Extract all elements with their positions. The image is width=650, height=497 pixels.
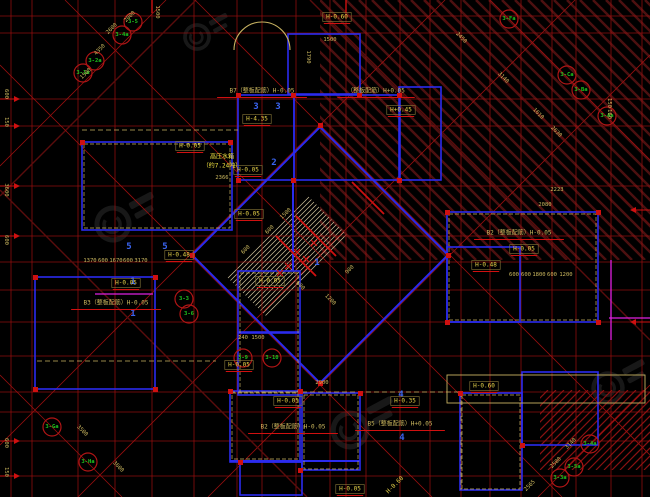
hatch-line bbox=[593, 0, 650, 260]
dim-text: 1500 bbox=[154, 5, 160, 18]
watermark-glyph bbox=[213, 23, 228, 34]
hatch-line bbox=[204, 195, 326, 317]
label-text: H-0.05 bbox=[259, 278, 281, 285]
axis-bubble-label: 3-6 bbox=[184, 311, 195, 317]
label-text: H-0.60 bbox=[326, 14, 348, 21]
watermark-glyph bbox=[134, 205, 154, 220]
text-label: H-0.60 bbox=[385, 475, 406, 496]
axis-bubble: 3-Ba bbox=[572, 81, 590, 99]
column-mark bbox=[596, 210, 601, 215]
column-mark bbox=[228, 140, 233, 145]
section-digit: 1 bbox=[314, 258, 319, 268]
axis-bubble: 3-10 bbox=[263, 349, 281, 367]
dim-text: 1370 bbox=[83, 258, 96, 264]
dim-text: 600 bbox=[264, 224, 275, 235]
hatch-line bbox=[199, 195, 321, 317]
hatch-line bbox=[468, 390, 548, 470]
axis-bubble: 3-6 bbox=[180, 305, 198, 323]
column-mark bbox=[445, 320, 450, 325]
dim-text: 4350 bbox=[93, 43, 107, 57]
axis-bubble-label: 3-Ha bbox=[81, 459, 94, 465]
hatch-line bbox=[489, 0, 650, 260]
plate-dashed-outline bbox=[462, 395, 520, 489]
column-mark bbox=[446, 253, 451, 258]
column-mark bbox=[33, 275, 38, 280]
section-digit: 5 bbox=[126, 242, 131, 252]
axis-bubble-label: 3-10 bbox=[265, 355, 278, 361]
dim-arrow-head bbox=[14, 96, 20, 102]
dim-text: 150 bbox=[3, 467, 9, 477]
hatch-line bbox=[209, 195, 331, 317]
label-text: H-0.05 bbox=[339, 486, 361, 493]
wall-rect bbox=[240, 462, 302, 495]
dim-text: 160 bbox=[606, 109, 612, 119]
label-text: B2（整板配筋）H-0.05 bbox=[487, 229, 552, 237]
text-label: B2（整板配筋）H-0.05 bbox=[248, 423, 338, 434]
column-mark bbox=[80, 140, 85, 145]
label-text: B7（整板配筋）H-0.05 bbox=[230, 87, 295, 95]
elevation-label: H-4.35 bbox=[243, 115, 271, 126]
watermark bbox=[91, 187, 163, 246]
elevation-label: H-0.48 bbox=[165, 251, 193, 262]
axis-bubble-label: 3-9 bbox=[238, 355, 248, 361]
dim-arrow-head bbox=[14, 438, 20, 444]
label-text: B2（整板配筋）H-0.05 bbox=[261, 423, 326, 431]
diagonal-grid-line bbox=[65, 0, 562, 497]
axis-bubble-label: 3-Ca bbox=[560, 72, 573, 78]
axis-bubble: 3-Ca bbox=[558, 66, 576, 84]
label-text: （约7.24吨） bbox=[203, 162, 241, 170]
axis-bubble-label: 3-Ba bbox=[574, 87, 587, 93]
elevation-label: H-0.05 bbox=[225, 361, 253, 372]
hatch-line bbox=[254, 195, 376, 317]
dim-text: 150 bbox=[606, 98, 612, 108]
dim-text: 3170 bbox=[134, 258, 147, 264]
label-text: H-0.05 bbox=[513, 246, 535, 253]
column-mark bbox=[291, 178, 296, 183]
column-mark bbox=[397, 178, 402, 183]
dim-text: 150 bbox=[3, 117, 9, 127]
axis-bubble: 3-Fa bbox=[500, 10, 518, 28]
column-mark bbox=[596, 320, 601, 325]
elevation-label: H-0.48 bbox=[472, 261, 500, 272]
hatch-line bbox=[580, 0, 650, 260]
dim-text: 2565 bbox=[523, 479, 537, 493]
label-text: H-0.60 bbox=[473, 383, 495, 390]
column-mark bbox=[298, 389, 303, 394]
watermark-swirl-icon bbox=[181, 21, 213, 53]
hatch-layer bbox=[60, 0, 650, 470]
elevation-label: H+0.45 bbox=[387, 106, 415, 117]
dim-text: 2900 bbox=[315, 380, 328, 386]
diagonal-layer bbox=[0, 0, 650, 497]
dim-text: 600 bbox=[3, 89, 9, 99]
dim-text: 1670 bbox=[109, 258, 122, 264]
column-mark bbox=[458, 391, 463, 396]
watermark-swirl-icon bbox=[91, 202, 134, 245]
hatch-band bbox=[460, 390, 650, 470]
section-digit: 1 bbox=[130, 309, 135, 319]
text-label: （约7.24吨） bbox=[203, 162, 241, 170]
dim-text: 2223 bbox=[550, 187, 563, 193]
axis-bubble: 3-Ha bbox=[79, 453, 97, 471]
label-text: H-0.60 bbox=[385, 475, 406, 496]
label-text: H-0.05 bbox=[228, 362, 250, 369]
axis-bubble-label: 3-4a bbox=[583, 441, 596, 447]
elevation-label: H-0.35 bbox=[391, 397, 419, 408]
elevation-label: H-0.05 bbox=[235, 210, 263, 221]
column-mark bbox=[520, 443, 525, 448]
dim-arrow-head bbox=[14, 473, 20, 479]
label-text: H-0.05 bbox=[115, 280, 137, 287]
label-text: H-0.35 bbox=[394, 398, 416, 405]
dim-text: 1200 bbox=[559, 272, 572, 278]
dim-text: 600 bbox=[521, 272, 531, 278]
diagonal-grid-line bbox=[490, 0, 650, 160]
elevation-label: H-0.60 bbox=[470, 382, 498, 393]
label-text: H-0.05 bbox=[238, 211, 260, 218]
watermark-swirl-icon bbox=[189, 30, 205, 46]
dim-text: 600 bbox=[3, 235, 9, 245]
dim-text: 600 bbox=[98, 258, 108, 264]
elevation-label: H-0.05 bbox=[176, 142, 204, 153]
text-label: B3（整板配筋）H-0.05 bbox=[71, 299, 161, 310]
dim-arrow-head bbox=[14, 233, 20, 239]
axis-bubble: 3-4a bbox=[581, 435, 599, 453]
column-mark bbox=[318, 123, 323, 128]
dim-text: 3600 bbox=[111, 460, 125, 474]
label-text: H+0.45 bbox=[390, 107, 412, 114]
grid-layer bbox=[0, 0, 650, 497]
dim-text: 600 bbox=[509, 272, 519, 278]
text-label: 高压水箱 bbox=[210, 153, 234, 161]
dim-text: 600 bbox=[3, 438, 9, 448]
section-digit: 3 bbox=[275, 102, 280, 112]
wall-rect bbox=[460, 393, 522, 490]
axis-bubble-label: 3-5a bbox=[567, 464, 580, 470]
dim-text: 1790 bbox=[305, 50, 311, 63]
dim-text: 1500 bbox=[323, 37, 336, 43]
column-mark bbox=[153, 387, 158, 392]
section-digit: 4 bbox=[399, 433, 405, 443]
hatch-line bbox=[460, 390, 540, 470]
axis-bubble-label: 3-Ga bbox=[45, 424, 58, 430]
column-mark bbox=[445, 210, 450, 215]
axis-bubble-label: 3-3a bbox=[553, 475, 566, 481]
cad-viewport[interactable]: autocad-floor-plan-viewport 3-53-4a3-2a3… bbox=[0, 0, 650, 497]
section-digit: 2 bbox=[271, 158, 276, 168]
axis-bubble-label: 3-4a bbox=[115, 32, 128, 38]
axis-bubble-label: 3-Fa bbox=[502, 16, 515, 22]
hatch-line bbox=[515, 0, 650, 260]
axis-bubble: 3-3a bbox=[551, 469, 569, 487]
label-text: B5（整板配筋）H+0.05 bbox=[368, 420, 433, 428]
column-mark bbox=[153, 275, 158, 280]
dim-text: 1500 bbox=[279, 207, 293, 221]
dim-text: 600 bbox=[240, 244, 251, 255]
column-mark bbox=[190, 253, 195, 258]
label-text: 高压水箱 bbox=[210, 153, 234, 161]
label-text: H-0.48 bbox=[475, 262, 497, 269]
column-mark bbox=[358, 391, 363, 396]
dim-text: 1800 bbox=[532, 272, 545, 278]
elevation-label: H-0.05 bbox=[112, 279, 140, 290]
column-mark bbox=[228, 389, 233, 394]
diagonal-grid-line bbox=[0, 0, 196, 196]
hatch-line bbox=[632, 0, 650, 260]
column-mark bbox=[238, 460, 243, 465]
dim-text: 1500 bbox=[251, 335, 264, 341]
wall-rect bbox=[447, 247, 520, 322]
elevation-label: H-0.60 bbox=[323, 13, 351, 24]
column-mark bbox=[236, 178, 241, 183]
section-digit: 3 bbox=[253, 102, 258, 112]
cad-drawing: 3-53-4a3-2a3-1a3-Fa3-Ca3-Ba3-Aa3-33-63-9… bbox=[0, 0, 650, 497]
label-text: （整板配筋）H+0.05 bbox=[347, 87, 405, 95]
dim-text: 600 bbox=[123, 258, 133, 264]
diagonal-grid-line bbox=[0, 0, 445, 445]
dim-text: 2366 bbox=[215, 175, 228, 181]
diagonal-grid-line bbox=[0, 375, 122, 497]
dim-text: 600 bbox=[547, 272, 557, 278]
dim-text: 3500 bbox=[75, 424, 89, 438]
label-text: H-0.48 bbox=[168, 252, 190, 259]
dim-arrow-head bbox=[14, 123, 20, 129]
diagonal-grid-line bbox=[0, 65, 432, 497]
dim-text: 3600 bbox=[3, 183, 9, 196]
column-mark bbox=[298, 468, 303, 473]
label-text: H-0.05 bbox=[179, 143, 201, 150]
dim-text: 240 bbox=[238, 335, 248, 341]
axis-bubble: 3-Ga bbox=[43, 418, 61, 436]
dim-text: 2080 bbox=[538, 202, 551, 208]
axis-bubble-label: 3-3 bbox=[179, 296, 189, 302]
label-text: B3（整板配筋）H-0.05 bbox=[84, 299, 149, 307]
watermark-swirl-icon bbox=[102, 215, 123, 236]
label-text: H-0.05 bbox=[277, 398, 299, 405]
dim-arrow-head bbox=[630, 319, 636, 325]
label-text: H-4.35 bbox=[246, 116, 268, 123]
column-mark bbox=[33, 387, 38, 392]
dim-arrow-head bbox=[14, 183, 20, 189]
axis-bubble-label: 3-2a bbox=[88, 58, 101, 64]
elevation-label: H-0.05 bbox=[336, 485, 364, 496]
